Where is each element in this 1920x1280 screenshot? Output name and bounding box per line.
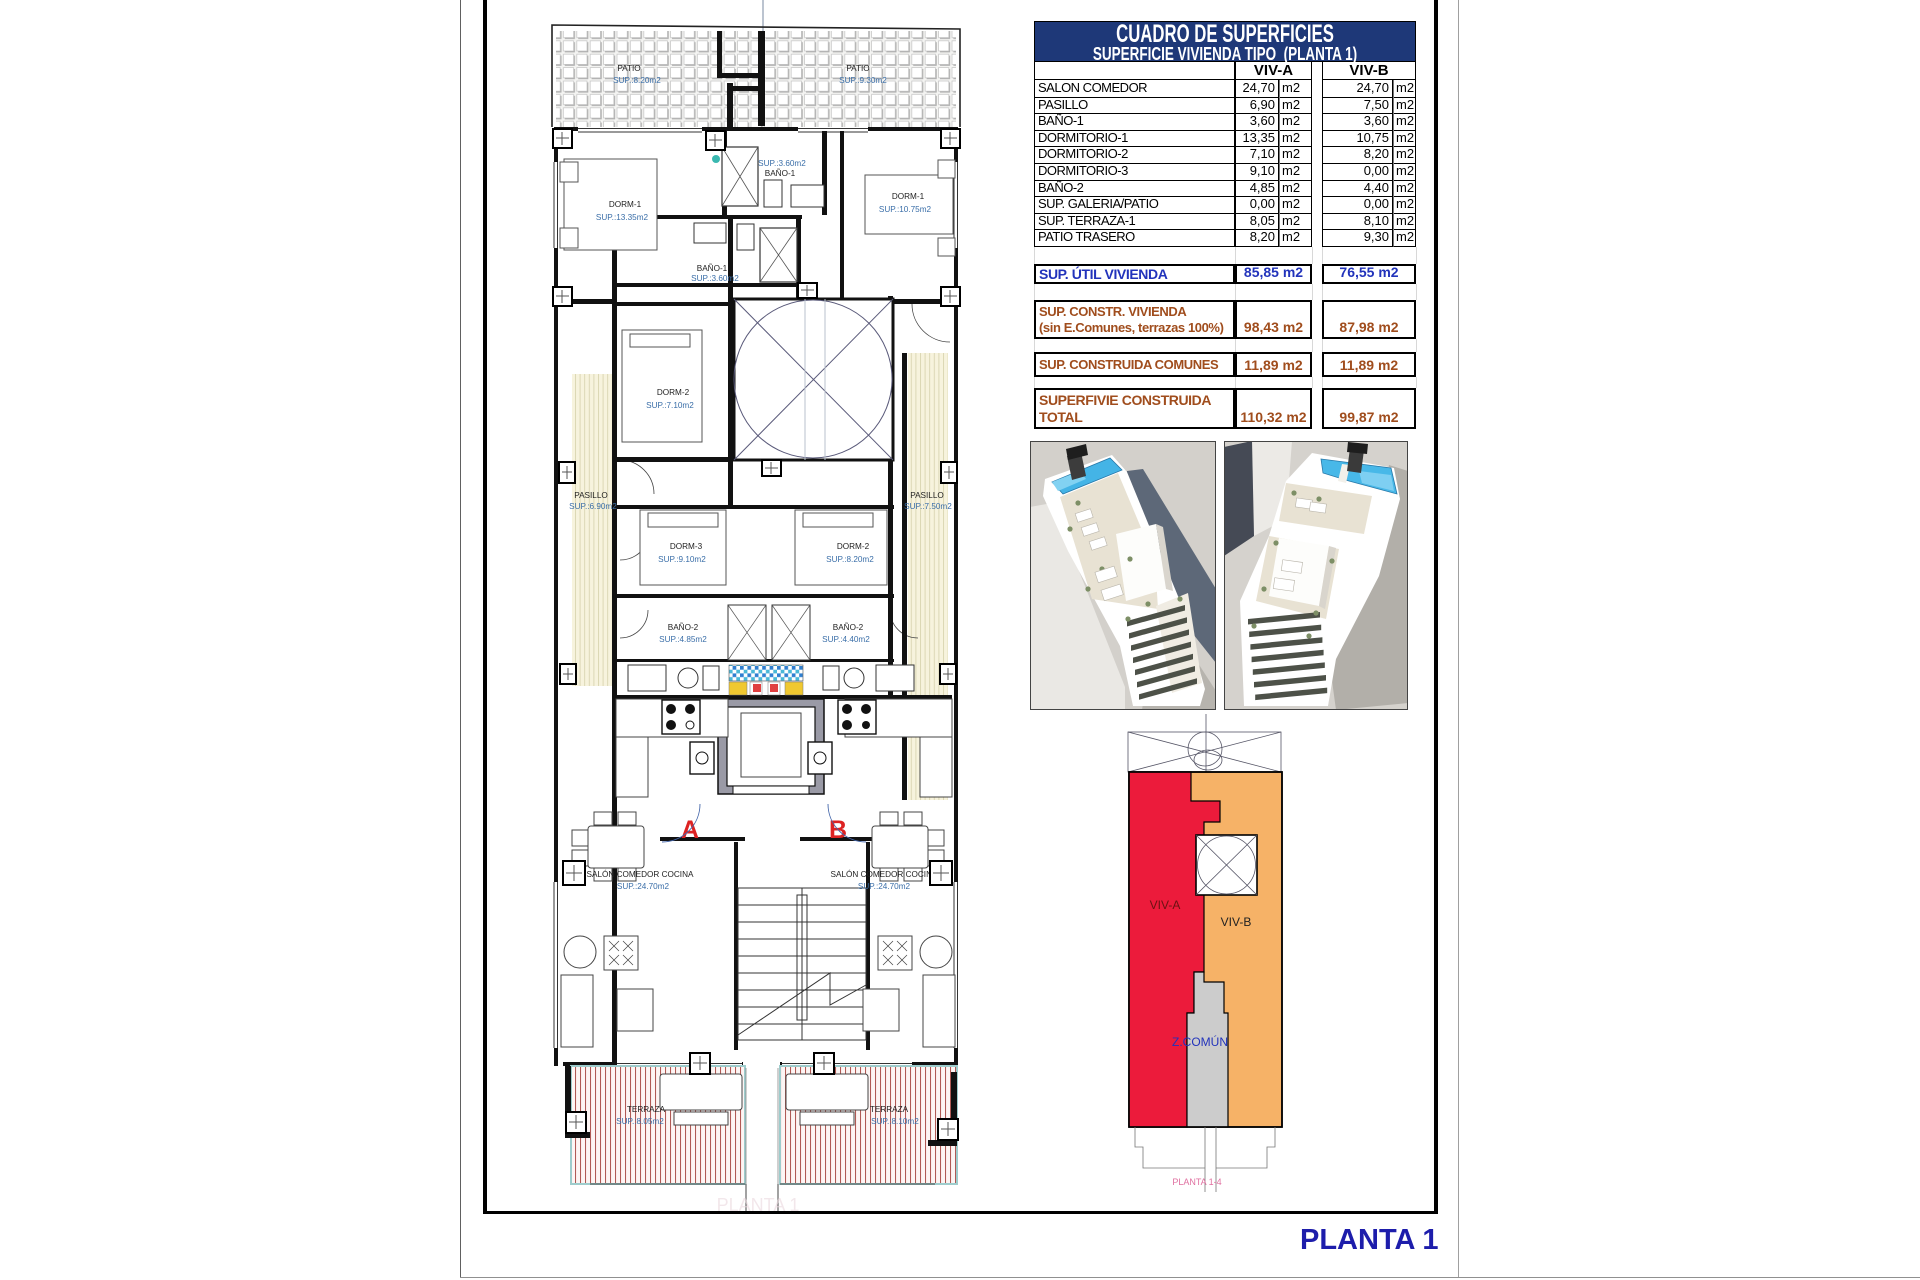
svg-text:PLANTA 1: PLANTA 1	[717, 1195, 800, 1215]
svg-text:SUP.:24.70m2: SUP.:24.70m2	[617, 882, 670, 891]
svg-text:VIV-A: VIV-A	[1150, 898, 1181, 912]
svg-text:TERRAZA: TERRAZA	[870, 1105, 909, 1114]
svg-text:SUP.:7.10m2: SUP.:7.10m2	[646, 401, 694, 410]
svg-text:BAÑO-1: BAÑO-1	[697, 263, 728, 273]
svg-text:SALÓN COMEDOR COCINA: SALÓN COMEDOR COCINA	[587, 869, 694, 879]
svg-text:SUP.:8.10m2: SUP.:8.10m2	[871, 1117, 919, 1126]
svg-text:DORM-1: DORM-1	[609, 200, 642, 209]
svg-text:SUP.:10.75m2: SUP.:10.75m2	[879, 205, 932, 214]
svg-text:SUP.:6.90m2: SUP.:6.90m2	[569, 502, 617, 511]
svg-text:BAÑO-2: BAÑO-2	[668, 622, 699, 632]
svg-text:DORM-1: DORM-1	[892, 192, 925, 201]
svg-text:SUP.:3.60m2: SUP.:3.60m2	[691, 274, 739, 283]
svg-text:SUP.:9.10m2: SUP.:9.10m2	[658, 555, 706, 564]
svg-text:SUP.:3.60m2: SUP.:3.60m2	[758, 159, 806, 168]
svg-text:SUP.:4.85m2: SUP.:4.85m2	[659, 635, 707, 644]
svg-text:Z.COMÚN: Z.COMÚN	[1172, 1034, 1228, 1049]
svg-text:BAÑO-2: BAÑO-2	[833, 622, 864, 632]
svg-text:PASILLO: PASILLO	[574, 491, 608, 500]
svg-text:TERRAZA: TERRAZA	[627, 1105, 666, 1114]
svg-text:SUP.:7.50m2: SUP.:7.50m2	[904, 502, 952, 511]
svg-text:VIV-B: VIV-B	[1221, 915, 1252, 929]
svg-text:SUP.:8.20m2: SUP.:8.20m2	[826, 555, 874, 564]
svg-text:SUP.:4.40m2: SUP.:4.40m2	[822, 635, 870, 644]
svg-text:SUP.:8.20m2: SUP.:8.20m2	[613, 76, 661, 85]
svg-text:DORM-2: DORM-2	[837, 542, 870, 551]
svg-text:SUP.:8.05m2: SUP.:8.05m2	[616, 1117, 664, 1126]
svg-text:DORM-3: DORM-3	[670, 542, 703, 551]
svg-text:BAÑO-1: BAÑO-1	[765, 168, 796, 178]
svg-text:PATIO: PATIO	[846, 64, 869, 73]
svg-text:SUP.:9.30m2: SUP.:9.30m2	[839, 76, 887, 85]
svg-text:PATIO: PATIO	[617, 64, 640, 73]
svg-text:SUP.:13.35m2: SUP.:13.35m2	[596, 213, 649, 222]
svg-text:PASILLO: PASILLO	[910, 491, 944, 500]
svg-text:SUP.:24.70m2: SUP.:24.70m2	[858, 882, 911, 891]
svg-text:DORM-2: DORM-2	[657, 388, 690, 397]
svg-text:SALÓN COMEDOR COCINA: SALÓN COMEDOR COCINA	[831, 869, 938, 879]
svg-text:PLANTA 1-4: PLANTA 1-4	[1172, 1177, 1221, 1187]
